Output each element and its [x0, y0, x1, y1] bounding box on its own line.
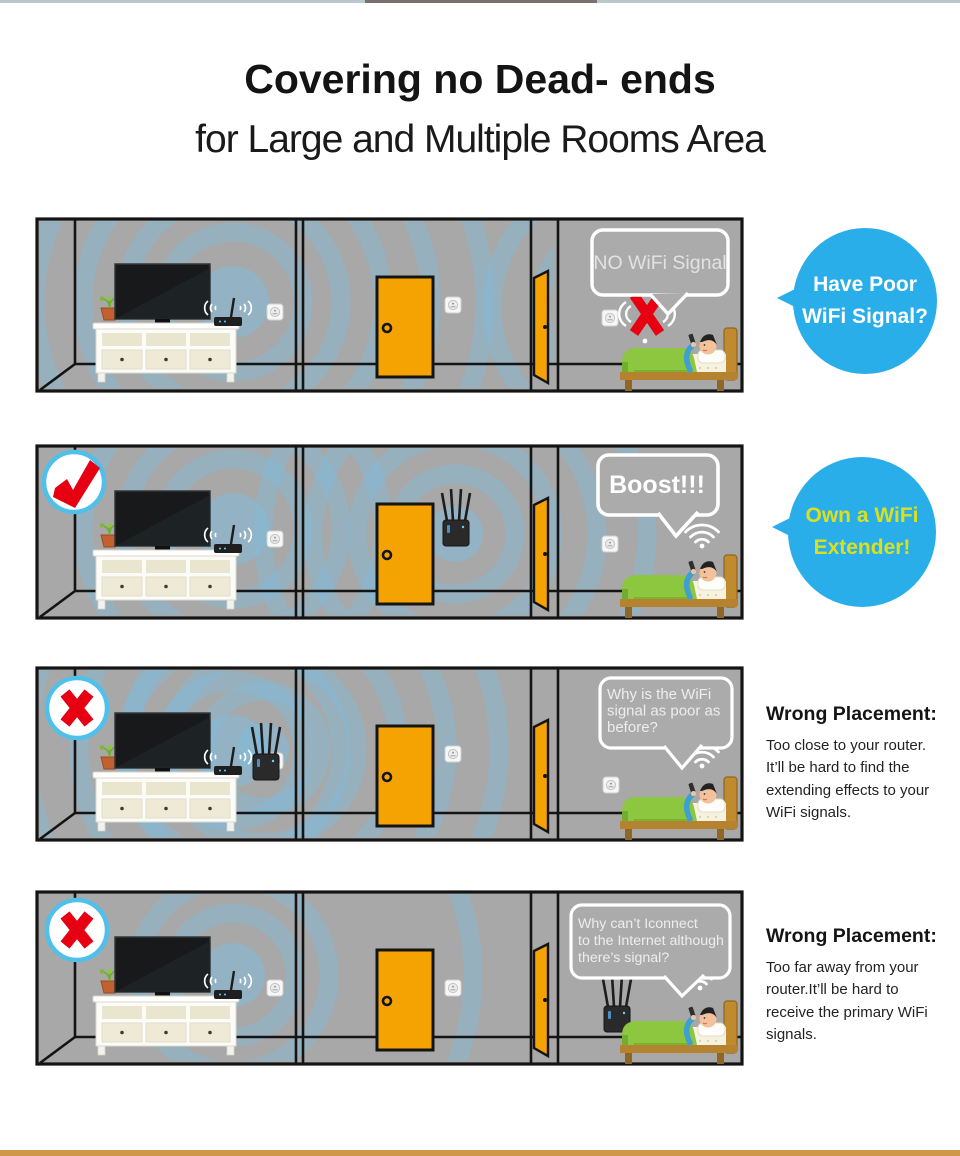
power-outlet-icon [602, 310, 618, 326]
note-line: receive the primary WiFi [766, 1002, 960, 1024]
speech-text: before? [607, 719, 658, 736]
tv-cabinet [93, 323, 239, 382]
tv-cabinet [93, 996, 239, 1055]
callout-line: WiFi Signal? [802, 301, 928, 333]
note-line: router.It’ll be hard to [766, 979, 960, 1001]
door [377, 950, 433, 1050]
power-outlet-icon [445, 297, 461, 313]
cross-badge-icon [47, 900, 107, 960]
wrong-placement-note-too-far: Wrong Placement: Too far away from your … [766, 925, 960, 1047]
speech-text: signal as poor as [607, 703, 720, 720]
bottom-edge-bar [0, 1150, 960, 1156]
note-line: Too far away from your [766, 957, 960, 979]
power-outlet-icon [603, 777, 619, 793]
power-outlet-icon [267, 531, 283, 547]
note-line: extending effects to your [766, 780, 960, 802]
callout-line: Own a WiFi [806, 500, 919, 532]
note-line: signals. [766, 1024, 960, 1046]
power-outlet-icon [445, 980, 461, 996]
callout-line: Extender! [814, 532, 911, 564]
callout-line: Have Poor [813, 269, 917, 301]
speech-text: to the Internet although [578, 933, 724, 949]
power-outlet-icon [267, 980, 283, 996]
power-outlet-icon [602, 536, 618, 552]
check-badge-icon [44, 452, 104, 512]
door [377, 726, 433, 826]
tv [115, 713, 210, 777]
callout-have-poor-wifi: Have Poor WiFi Signal? [793, 228, 937, 374]
speech-text: there’s signal? [578, 950, 669, 966]
tv-cabinet [93, 772, 239, 831]
product-infographic: Covering no Dead- ends for Large and Mul… [0, 0, 960, 1156]
top-edge-strip-dark-segment [365, 0, 597, 3]
door [377, 504, 433, 604]
page-title: Covering no Dead- ends [0, 56, 960, 103]
callout-own-extender: Own a WiFi Extender! [788, 457, 936, 607]
speech-text: Why can’t Iconnect [578, 916, 698, 932]
tv [115, 491, 210, 555]
note-line: WiFi signals. [766, 802, 960, 824]
wrong-placement-note-too-close: Wrong Placement: Too close to your route… [766, 703, 960, 825]
note-heading: Wrong Placement: [766, 703, 960, 726]
speech-text: Why is the WiFi [607, 686, 711, 703]
tv-cabinet [93, 550, 239, 609]
power-outlet-icon [267, 304, 283, 320]
power-outlet-icon [445, 746, 461, 762]
page-subtitle: for Large and Multiple Rooms Area [0, 118, 960, 162]
door [377, 277, 433, 377]
speech-text: Boost!!! [609, 471, 705, 499]
note-line: It’ll be hard to find the [766, 757, 960, 779]
note-heading: Wrong Placement: [766, 925, 960, 948]
note-line: Too close to your router. [766, 735, 960, 757]
speech-text: NO WiFi Signal [593, 252, 726, 274]
tv [115, 937, 210, 1001]
cross-badge-icon [47, 678, 107, 738]
tv [115, 264, 210, 328]
